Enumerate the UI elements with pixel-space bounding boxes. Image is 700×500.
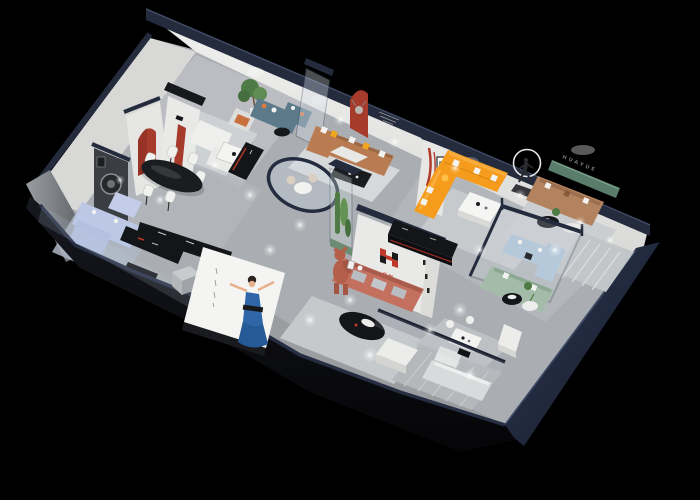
white-pillow [291, 106, 295, 110]
white-pillow [92, 210, 96, 214]
table-decor [468, 340, 471, 343]
showroom-render: 华悦 [0, 0, 700, 500]
orange-pillow [262, 104, 267, 109]
table-vase [232, 152, 236, 156]
white-round-table [522, 301, 538, 311]
table-decor [485, 207, 488, 210]
wall-glow [571, 145, 595, 155]
white-pillow [272, 108, 277, 113]
woman-face [249, 281, 255, 287]
sofa-plant [524, 282, 532, 290]
shelf-item [425, 274, 428, 279]
white-pillow [538, 248, 542, 252]
cactus [335, 192, 340, 234]
bear-head [335, 250, 346, 261]
bear-leg [334, 283, 339, 294]
white-pillow [358, 266, 363, 271]
tree-foliage [238, 90, 250, 102]
round-art-center [107, 180, 115, 188]
table-plant [552, 208, 560, 216]
white-chair [446, 320, 454, 328]
sculpture-head [524, 158, 528, 162]
table-decor [476, 202, 480, 206]
cactus [345, 219, 351, 237]
tray-item [356, 176, 359, 179]
bear-leg [343, 284, 348, 295]
pod-chair [309, 174, 318, 183]
warm-lamp-glow [442, 175, 449, 182]
white-pillow [518, 240, 522, 244]
table-decor [461, 336, 464, 339]
shelf-item [423, 260, 426, 265]
bear-ear [343, 247, 347, 251]
pod-chair [287, 176, 296, 185]
red-decor-dot [355, 324, 358, 327]
shelf-item [427, 288, 430, 293]
picture-frame [97, 157, 105, 167]
round-black-table [274, 128, 290, 137]
white-chair [466, 316, 474, 324]
table-bowl [508, 295, 517, 299]
render-canvas: 华悦 [0, 0, 700, 500]
white-pillow [114, 219, 118, 223]
pod-table [294, 182, 312, 194]
